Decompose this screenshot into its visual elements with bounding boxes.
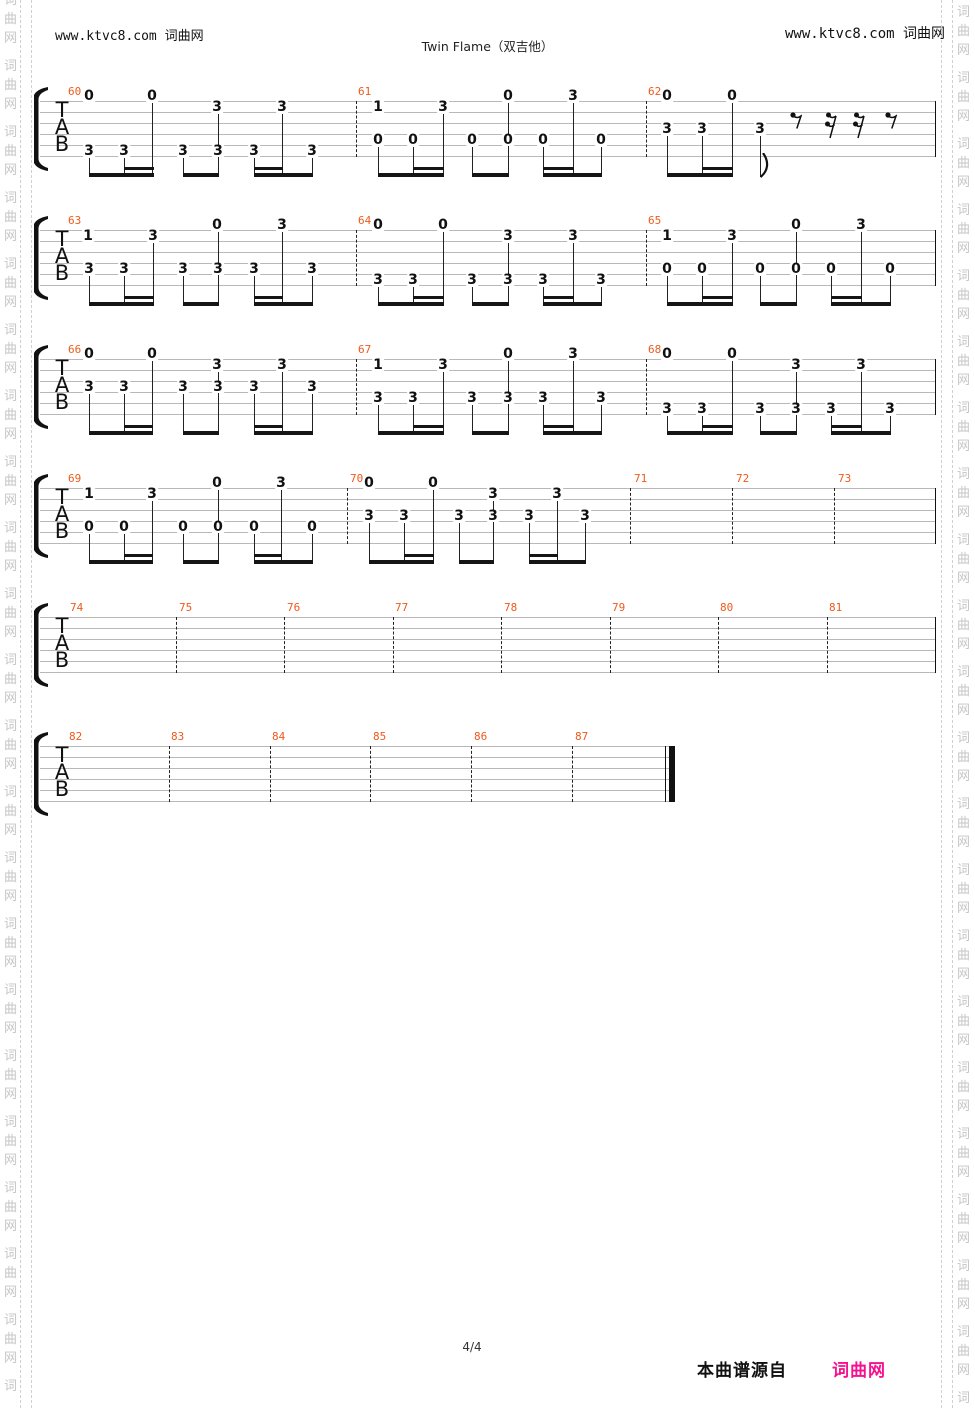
fret-number: 0 [726, 90, 738, 102]
staff-line [40, 134, 935, 135]
watermark-char: 曲 [4, 871, 17, 885]
watermark-char: 网 [4, 1352, 17, 1366]
watermark-char: 曲 [957, 1213, 970, 1227]
note-stem [282, 232, 283, 306]
watermark-char: 词 [957, 864, 970, 878]
beam [378, 431, 444, 435]
fret-number: 3 [177, 145, 189, 157]
fret-number: 0 [790, 219, 802, 231]
staff-bracket [26, 215, 48, 301]
note-stem [861, 232, 862, 306]
beam [472, 173, 509, 177]
watermark-char: 词 [957, 798, 970, 812]
barline-dashed [827, 617, 828, 673]
staff-line [40, 543, 935, 544]
barline-dashed [501, 617, 502, 673]
fret-number: 0 [437, 219, 449, 231]
measure-number: 71 [634, 473, 647, 485]
staff-bracket [26, 731, 48, 817]
beam [459, 560, 494, 564]
beam [89, 431, 153, 435]
beam [702, 296, 733, 299]
fret-number: 0 [306, 521, 318, 533]
fret-number: 3 [502, 230, 514, 242]
fret-number: 0 [177, 521, 189, 533]
beam [254, 431, 313, 435]
watermark-char: 网 [957, 902, 970, 916]
barline-dashed [284, 617, 285, 673]
barline-dashed [646, 359, 647, 415]
barline-dashed [630, 488, 631, 544]
watermark-char: 词 [4, 456, 17, 470]
watermark-char: 网 [4, 890, 17, 904]
barline-dashed [610, 617, 611, 673]
note-stem [732, 361, 733, 435]
beam [413, 167, 444, 170]
measure-number: 70 [350, 473, 363, 485]
fret-number: 0 [754, 263, 766, 275]
beam [89, 302, 154, 306]
watermark-char: 曲 [957, 223, 970, 237]
watermark-char: 曲 [957, 421, 970, 435]
fret-number: 3 [551, 488, 563, 500]
staff-line [40, 252, 935, 253]
watermark-char: 曲 [957, 157, 970, 171]
beam [89, 560, 153, 564]
watermark-char: 网 [4, 956, 17, 970]
fret-number: 3 [487, 510, 499, 522]
fret-number: 3 [276, 359, 288, 371]
measure-number: 69 [68, 473, 81, 485]
fret-number: 3 [579, 510, 591, 522]
beam [89, 173, 154, 177]
eighth-rest [790, 111, 802, 129]
fret-number: 3 [661, 123, 673, 135]
watermark-char: 词 [957, 72, 970, 86]
fret-number: 3 [754, 123, 766, 135]
watermark-char: 词 [4, 918, 17, 932]
beam [831, 431, 891, 435]
beam [702, 167, 733, 170]
fret-number: 1 [82, 230, 94, 242]
watermark-char: 网 [4, 296, 17, 310]
watermark-char: 网 [957, 308, 970, 322]
fret-number: 3 [363, 510, 375, 522]
watermark-char: 网 [4, 626, 17, 640]
fret-number: 3 [437, 359, 449, 371]
note-stem [667, 136, 668, 177]
barline-dashed [646, 101, 647, 157]
fret-number: 3 [502, 392, 514, 404]
watermark-char: 网 [4, 1088, 17, 1102]
watermark-char: 网 [4, 824, 17, 838]
barline-end [665, 746, 666, 802]
staff-line [40, 156, 935, 157]
fret-number: 0 [661, 90, 673, 102]
watermark-char: 曲 [957, 1279, 970, 1293]
fret-number: 3 [248, 381, 260, 393]
watermark-char: 曲 [957, 751, 970, 765]
fret-number: 3 [567, 90, 579, 102]
fret-number: 0 [83, 348, 95, 360]
watermark-char: 词 [4, 588, 17, 602]
watermark-char: 词 [4, 258, 17, 272]
beam [369, 560, 434, 564]
beam [413, 425, 444, 428]
watermark-char: 曲 [957, 685, 970, 699]
barline-dashed [732, 488, 733, 544]
fret-number: 0 [83, 90, 95, 102]
fret-number: 3 [248, 145, 260, 157]
beam [124, 425, 153, 428]
watermark-char: 曲 [4, 145, 17, 159]
fret-number: 3 [118, 263, 130, 275]
fret-number: 0 [502, 134, 514, 146]
watermark-char: 词 [957, 930, 970, 944]
beam [702, 425, 733, 428]
fret-number: 3 [372, 392, 384, 404]
fret-number: 3 [306, 381, 318, 393]
watermark-char: 词 [4, 1380, 17, 1394]
measure-number: 63 [68, 215, 81, 227]
watermark-char: 网 [4, 692, 17, 706]
fret-number: 3 [212, 145, 224, 157]
barline-dashed [356, 359, 357, 415]
measure-number: 87 [575, 731, 588, 743]
fret-number: 3 [83, 145, 95, 157]
fret-number: 0 [595, 134, 607, 146]
fret-number: 1 [372, 359, 384, 371]
source-site-link[interactable]: 词曲网 [832, 1356, 886, 1381]
beam [472, 431, 509, 435]
watermark-char: 词 [957, 468, 970, 482]
fret-number: 3 [118, 381, 130, 393]
watermark-char: 曲 [957, 355, 970, 369]
beam [667, 173, 733, 177]
beam [183, 302, 219, 306]
beam [254, 167, 283, 170]
watermark-char: 词 [4, 786, 17, 800]
watermark-char: 曲 [957, 553, 970, 567]
watermark-char: 曲 [4, 541, 17, 555]
staff-line [40, 672, 935, 673]
staff-bracket [26, 473, 48, 559]
fret-number: 3 [754, 403, 766, 415]
fret-number: 3 [212, 381, 224, 393]
watermark-char: 词 [957, 1128, 970, 1142]
watermark-char: 词 [4, 1182, 17, 1196]
measure-number: 68 [648, 344, 661, 356]
eighth-rest [885, 111, 897, 129]
watermark-char: 词 [957, 996, 970, 1010]
measure-number: 66 [68, 344, 81, 356]
watermark-char: 网 [957, 1232, 970, 1246]
measure-number: 75 [179, 602, 192, 614]
beam [124, 167, 154, 170]
fret-number: 3 [537, 392, 549, 404]
fret-number: 3 [466, 392, 478, 404]
beam [529, 560, 586, 564]
watermark-char: 词 [4, 324, 17, 338]
beam [378, 302, 444, 306]
beam [543, 302, 602, 306]
beam [404, 554, 434, 557]
fret-number: 0 [248, 521, 260, 533]
barline-dashed [169, 746, 170, 802]
barline-dashed [646, 230, 647, 286]
watermark-char: 词 [4, 1116, 17, 1130]
fret-number: 0 [825, 263, 837, 275]
watermark-char: 曲 [957, 1345, 970, 1359]
fret-number: 3 [275, 477, 287, 489]
fret-number: 3 [118, 145, 130, 157]
staff-line [40, 768, 675, 769]
watermark-char: 网 [957, 572, 970, 586]
fret-number: 0 [363, 477, 375, 489]
watermark-char: 网 [4, 428, 17, 442]
beam [543, 173, 602, 177]
fret-number: 3 [306, 263, 318, 275]
measure-number: 62 [648, 86, 661, 98]
watermark-divider [941, 0, 942, 1408]
watermark-char: 词 [957, 1062, 970, 1076]
watermark-char: 曲 [4, 1201, 17, 1215]
fret-number: 0 [372, 134, 384, 146]
barline-end [935, 617, 936, 673]
note-stem [459, 523, 460, 564]
fret-number: 0 [466, 134, 478, 146]
barline-dashed [471, 746, 472, 802]
fret-number: 3 [790, 403, 802, 415]
clef-letter: B [52, 652, 72, 669]
beam [760, 302, 797, 306]
note-stem [89, 394, 90, 435]
staff-line [40, 145, 935, 146]
staff-line [40, 628, 935, 629]
beam [543, 296, 574, 299]
watermark-char: 曲 [4, 1267, 17, 1281]
fret-number: 3 [595, 274, 607, 286]
watermark-char: 词 [4, 654, 17, 668]
note-stem [404, 523, 405, 564]
clef-letter: B [52, 136, 72, 153]
fret-number: 3 [466, 274, 478, 286]
fret-number: 3 [306, 145, 318, 157]
fret-number: 3 [276, 101, 288, 113]
beam [831, 302, 891, 306]
beam [529, 554, 558, 557]
note-stem [573, 361, 574, 435]
fret-number: 3 [372, 274, 384, 286]
barline-end [935, 488, 936, 544]
beam [183, 431, 219, 435]
staff-line [40, 392, 935, 393]
measure-number: 60 [68, 86, 81, 98]
staff-line [40, 532, 935, 533]
watermark-char: 网 [4, 32, 17, 46]
watermark-divider [952, 0, 953, 1408]
beam [667, 302, 733, 306]
watermark-char: 词 [4, 720, 17, 734]
watermark-char: 曲 [4, 277, 17, 291]
watermark-char: 词 [4, 60, 17, 74]
barline-dashed [176, 617, 177, 673]
watermark-char: 词 [4, 390, 17, 404]
staff-line [40, 241, 935, 242]
watermark-char: 词 [4, 1314, 17, 1328]
fret-number: 3 [855, 219, 867, 231]
fret-number: 3 [147, 230, 159, 242]
watermark-char: 词 [4, 126, 17, 140]
staff-line [40, 650, 935, 651]
beam [183, 173, 219, 177]
eighth-flag [760, 153, 771, 178]
measure-number: 86 [474, 731, 487, 743]
staff-line [40, 285, 935, 286]
beam [831, 425, 862, 428]
watermark-divider [31, 0, 32, 1408]
watermark-char: 曲 [957, 949, 970, 963]
watermark-char: 网 [4, 494, 17, 508]
measure-number: 64 [358, 215, 371, 227]
fret-number: 0 [146, 90, 158, 102]
beam [124, 554, 153, 557]
barline-dashed [572, 746, 573, 802]
measure-number: 67 [358, 344, 371, 356]
watermark-char: 网 [4, 362, 17, 376]
watermark-char: 曲 [4, 673, 17, 687]
watermark-char: 曲 [4, 937, 17, 951]
watermark-char: 词 [957, 1194, 970, 1208]
fret-number: 0 [537, 134, 549, 146]
watermark-char: 词 [957, 1260, 970, 1274]
fret-number: 3 [83, 381, 95, 393]
measure-number: 78 [504, 602, 517, 614]
watermark-char: 曲 [957, 1015, 970, 1029]
source-credit: 本曲谱源自 词曲网 [697, 1356, 886, 1381]
beam [831, 296, 862, 299]
measure-number: 72 [736, 473, 749, 485]
measure-number: 77 [395, 602, 408, 614]
fret-number: 0 [427, 477, 439, 489]
watermark-char: 曲 [957, 619, 970, 633]
watermark-char: 曲 [4, 739, 17, 753]
note-stem [585, 523, 586, 564]
sixteenth-rest [853, 111, 865, 139]
fret-number: 0 [726, 348, 738, 360]
barline-dashed [370, 746, 371, 802]
watermark-char: 曲 [957, 1081, 970, 1095]
fret-number: 0 [211, 477, 223, 489]
barline-dashed [718, 617, 719, 673]
fret-number: 3 [790, 359, 802, 371]
watermark-char: 词 [957, 534, 970, 548]
staff-line [40, 790, 675, 791]
measure-number: 84 [272, 731, 285, 743]
watermark-char: 网 [4, 758, 17, 772]
barline-dashed [356, 101, 357, 157]
measure-number: 83 [171, 731, 184, 743]
beam [378, 173, 444, 177]
watermark-char: 网 [957, 440, 970, 454]
watermark-char: 词 [4, 1248, 17, 1262]
watermark-char: 曲 [4, 1003, 17, 1017]
note-stem [529, 523, 530, 564]
clef-letter: B [52, 523, 72, 540]
fret-number: 3 [696, 403, 708, 415]
watermark-char: 网 [4, 1022, 17, 1036]
staff-line [40, 639, 935, 640]
fret-number: 0 [661, 263, 673, 275]
fret-number: 3 [487, 488, 499, 500]
fret-number: 0 [661, 348, 673, 360]
watermark-char: 词 [957, 402, 970, 416]
note-stem [152, 103, 153, 177]
fret-number: 3 [177, 263, 189, 275]
measure-number: 79 [612, 602, 625, 614]
fret-number: 0 [790, 263, 802, 275]
beam [413, 296, 444, 299]
watermark-char: 词 [4, 1050, 17, 1064]
page-number: 4/4 [0, 1340, 944, 1354]
fret-number: 3 [407, 392, 419, 404]
watermark-char: 词 [4, 984, 17, 998]
fret-number: 3 [177, 381, 189, 393]
watermark-char: 曲 [957, 487, 970, 501]
barline-end [935, 101, 936, 157]
fret-number: 3 [83, 263, 95, 275]
watermark-char: 网 [957, 110, 970, 124]
fret-number: 0 [502, 348, 514, 360]
watermark-char: 曲 [4, 607, 17, 621]
fret-number: 1 [661, 230, 673, 242]
fret-number: 0 [212, 521, 224, 533]
fret-number: 3 [398, 510, 410, 522]
fret-number: 0 [372, 219, 384, 231]
staff-line [40, 779, 675, 780]
barline-end [935, 230, 936, 286]
fret-number: 0 [146, 348, 158, 360]
watermark-char: 曲 [4, 343, 17, 357]
fret-number: 3 [146, 488, 158, 500]
measure-number: 73 [838, 473, 851, 485]
beam [183, 560, 219, 564]
fret-number: 3 [211, 101, 223, 113]
watermark-char: 网 [957, 638, 970, 652]
watermark-char: 词 [957, 1326, 970, 1340]
fret-number: 3 [407, 274, 419, 286]
beam [543, 167, 574, 170]
clef-letter: B [52, 265, 72, 282]
watermark-char: 网 [957, 770, 970, 784]
watermark-char: 网 [957, 242, 970, 256]
beam [254, 296, 283, 299]
fret-number: 3 [211, 359, 223, 371]
watermark-char: 曲 [957, 883, 970, 897]
note-stem [124, 394, 125, 435]
beam [254, 302, 313, 306]
watermark-char: 网 [957, 1100, 970, 1114]
watermark-char: 曲 [4, 1069, 17, 1083]
watermark-char: 网 [957, 374, 970, 388]
fret-number: 3 [537, 274, 549, 286]
fret-number: 3 [437, 101, 449, 113]
beam [124, 296, 154, 299]
beam [667, 431, 733, 435]
fret-number: 0 [502, 90, 514, 102]
watermark-char: 词 [957, 666, 970, 680]
measure-number: 76 [287, 602, 300, 614]
